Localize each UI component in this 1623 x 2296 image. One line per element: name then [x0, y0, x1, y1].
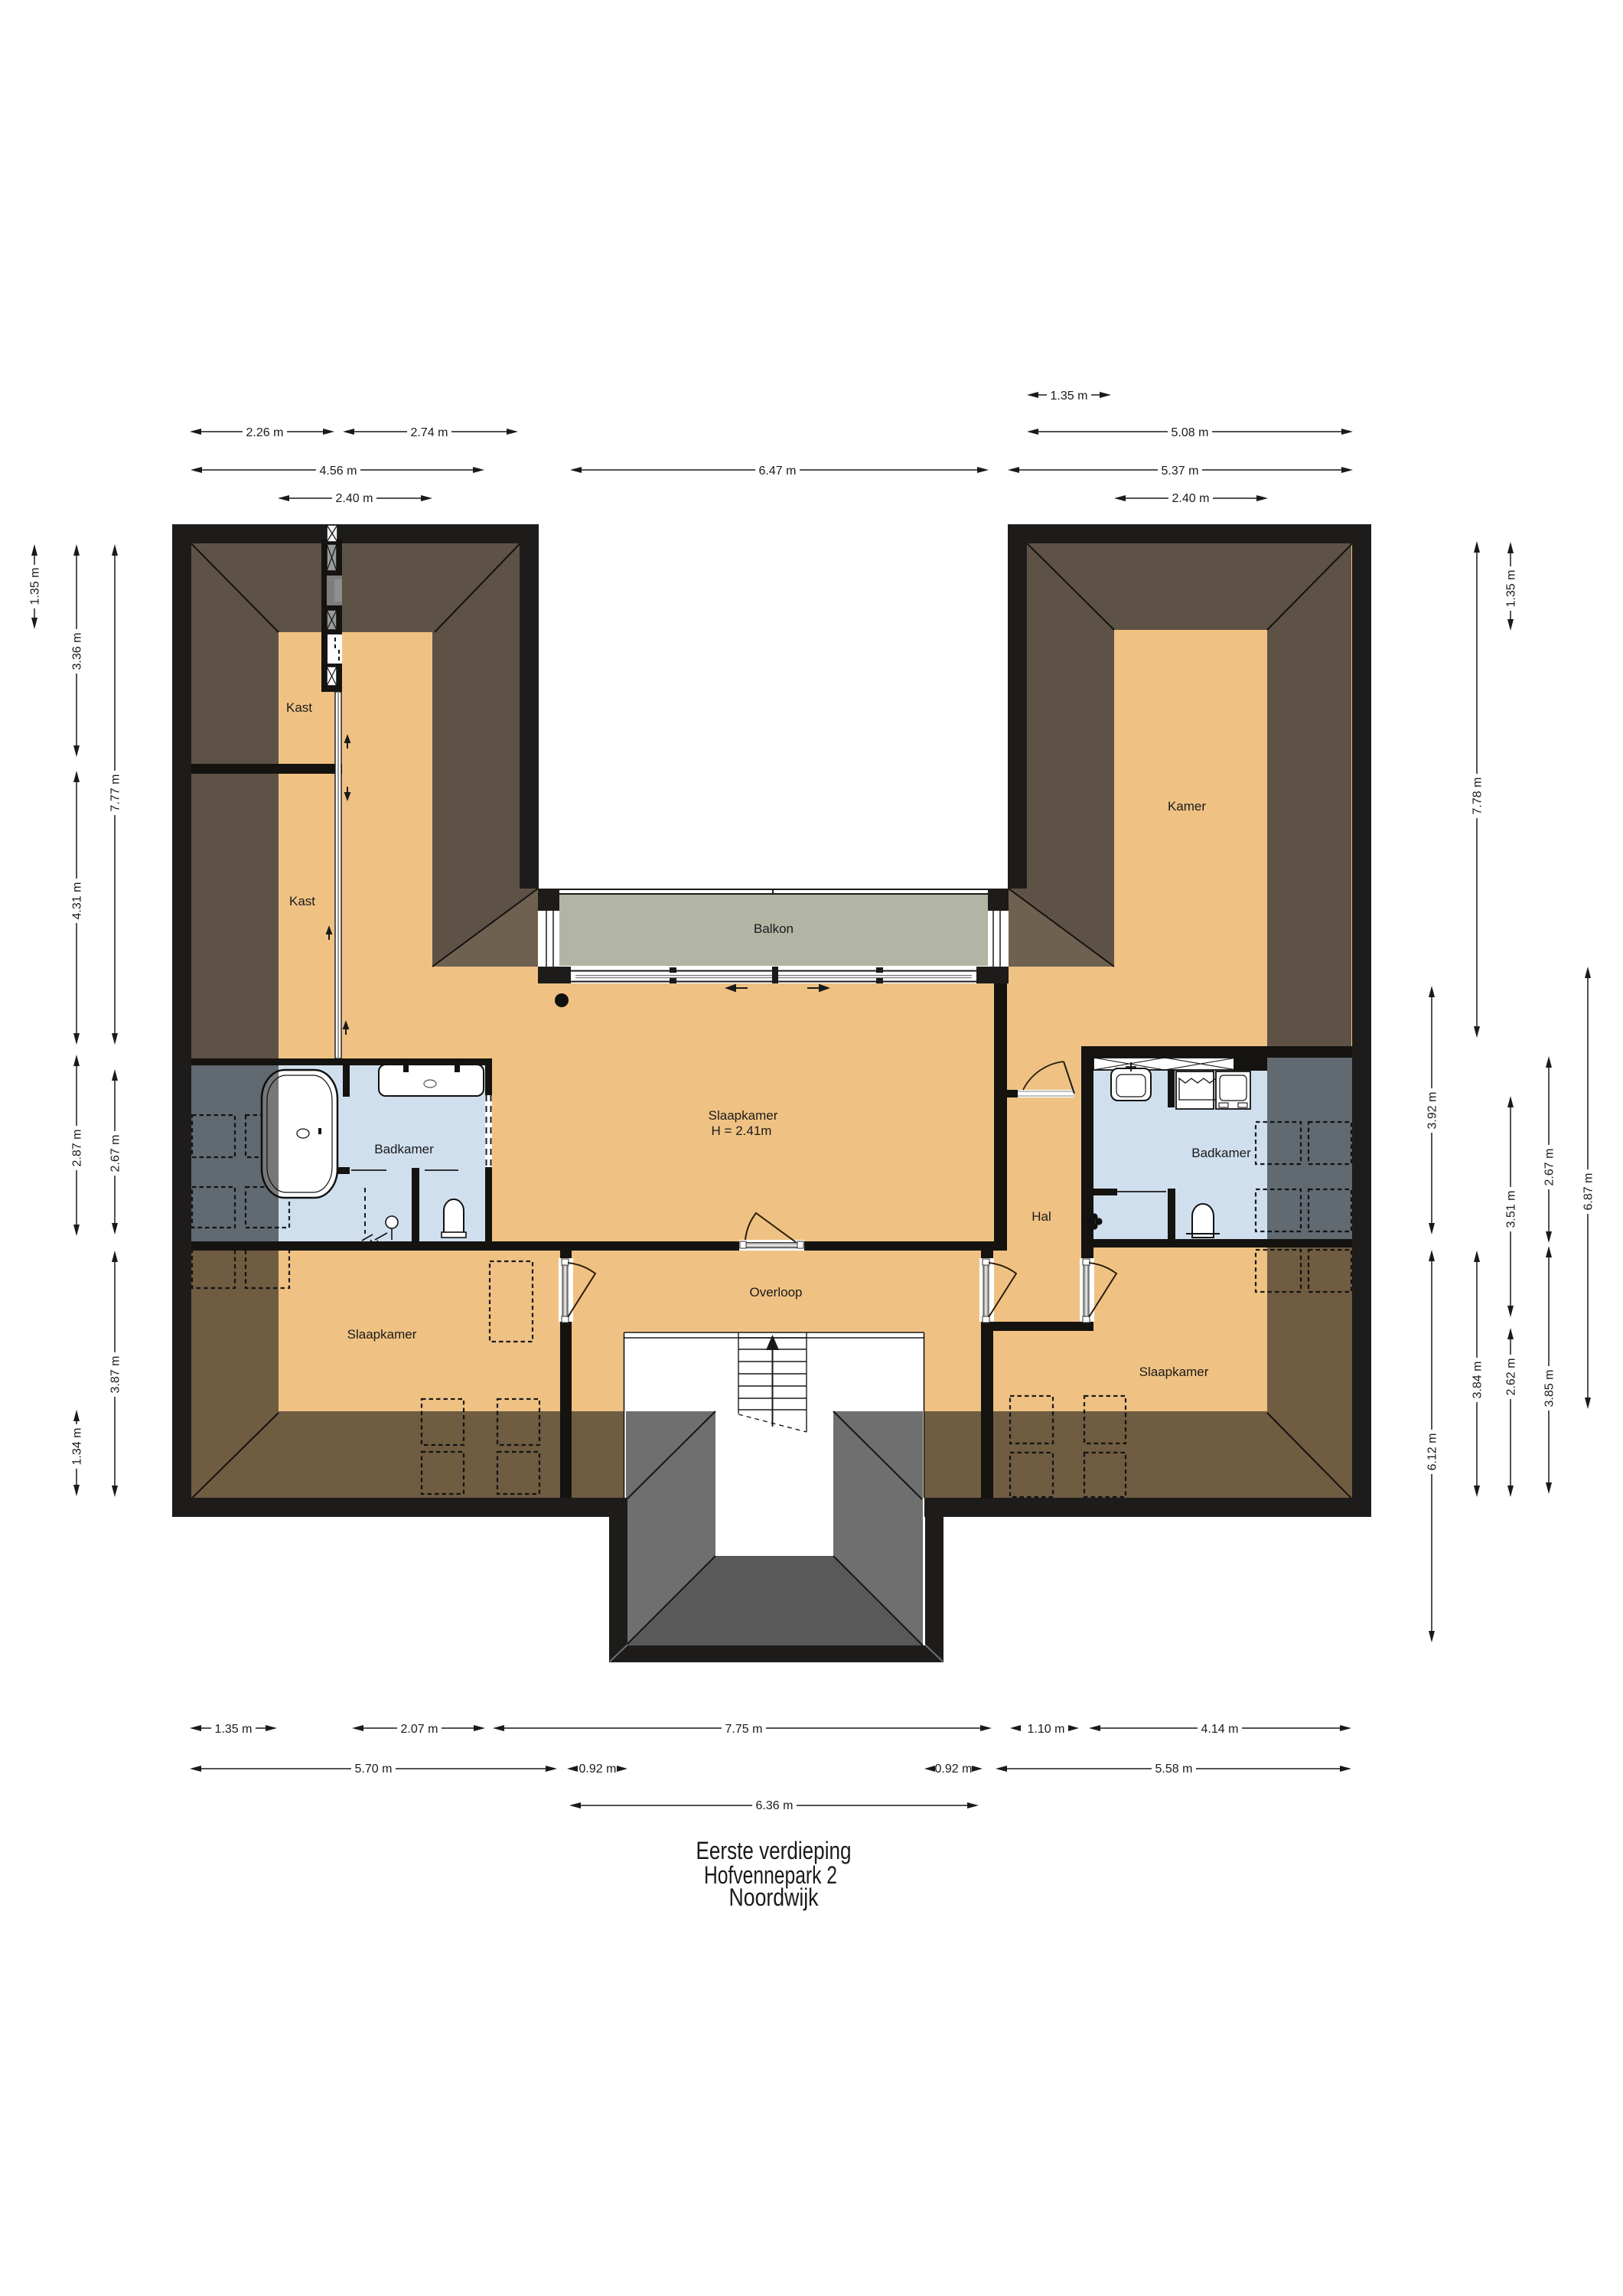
svg-text:1.10 m: 1.10 m — [1028, 1723, 1065, 1736]
svg-text:3.85 m: 3.85 m — [1543, 1370, 1556, 1407]
svg-text:4.56 m: 4.56 m — [320, 465, 357, 478]
svg-text:2.74 m: 2.74 m — [411, 426, 448, 439]
svg-text:4.31 m: 4.31 m — [71, 882, 84, 920]
svg-text:0.92 m: 0.92 m — [935, 1763, 973, 1776]
svg-text:1.35 m: 1.35 m — [215, 1723, 253, 1736]
svg-text:7.77 m: 7.77 m — [109, 775, 122, 812]
svg-text:7.75 m: 7.75 m — [725, 1723, 763, 1736]
svg-text:7.78 m: 7.78 m — [1471, 778, 1484, 815]
svg-text:1.35 m: 1.35 m — [29, 568, 42, 605]
svg-text:Kast: Kast — [286, 700, 312, 715]
svg-text:2.67 m: 2.67 m — [1543, 1149, 1556, 1186]
svg-text:Badkamer: Badkamer — [1191, 1146, 1251, 1160]
svg-text:Slaapkamer: Slaapkamer — [347, 1327, 417, 1342]
svg-text:6.12 m: 6.12 m — [1426, 1433, 1439, 1471]
svg-text:3.84 m: 3.84 m — [1471, 1362, 1484, 1399]
svg-text:5.37 m: 5.37 m — [1162, 465, 1199, 478]
svg-text:Eerste verdieping: Eerste verdieping — [696, 1837, 852, 1864]
svg-text:Kamer: Kamer — [1168, 799, 1206, 814]
svg-text:1.34 m: 1.34 m — [71, 1428, 84, 1466]
svg-text:4.14 m: 4.14 m — [1201, 1723, 1239, 1736]
svg-text:Overloop: Overloop — [750, 1285, 803, 1300]
svg-text:Noordwijk: Noordwijk — [729, 1883, 820, 1911]
svg-text:2.67 m: 2.67 m — [109, 1135, 122, 1172]
svg-text:2.62 m: 2.62 m — [1505, 1358, 1518, 1396]
svg-text:3.87 m: 3.87 m — [109, 1356, 122, 1394]
svg-text:Badkamer: Badkamer — [374, 1142, 434, 1156]
svg-text:Kast: Kast — [289, 894, 315, 908]
svg-text:2.40 m: 2.40 m — [1172, 492, 1210, 505]
svg-text:2.07 m: 2.07 m — [401, 1723, 438, 1736]
svg-text:5.08 m: 5.08 m — [1172, 426, 1209, 439]
svg-text:1.35 m: 1.35 m — [1505, 570, 1518, 608]
svg-text:6.47 m: 6.47 m — [759, 465, 797, 478]
svg-text:5.58 m: 5.58 m — [1155, 1763, 1193, 1776]
svg-text:2.87 m: 2.87 m — [71, 1130, 84, 1167]
svg-text:3.36 m: 3.36 m — [71, 633, 84, 670]
svg-text:H = 2.41m: H = 2.41m — [712, 1124, 772, 1138]
svg-text:Slaapkamer: Slaapkamer — [1139, 1365, 1209, 1379]
svg-text:3.51 m: 3.51 m — [1505, 1191, 1518, 1228]
svg-text:6.36 m: 6.36 m — [756, 1799, 794, 1812]
svg-text:3.92 m: 3.92 m — [1426, 1092, 1439, 1130]
svg-text:6.87 m: 6.87 m — [1582, 1173, 1595, 1211]
svg-text:5.70 m: 5.70 m — [355, 1763, 393, 1776]
svg-text:1.35 m: 1.35 m — [1051, 390, 1088, 403]
svg-text:0.92 m: 0.92 m — [579, 1763, 617, 1776]
svg-text:Hal: Hal — [1031, 1209, 1051, 1224]
svg-text:Slaapkamer: Slaapkamer — [709, 1108, 778, 1123]
svg-text:Balkon: Balkon — [754, 921, 794, 936]
svg-text:2.26 m: 2.26 m — [246, 426, 284, 439]
svg-text:2.40 m: 2.40 m — [336, 492, 373, 505]
